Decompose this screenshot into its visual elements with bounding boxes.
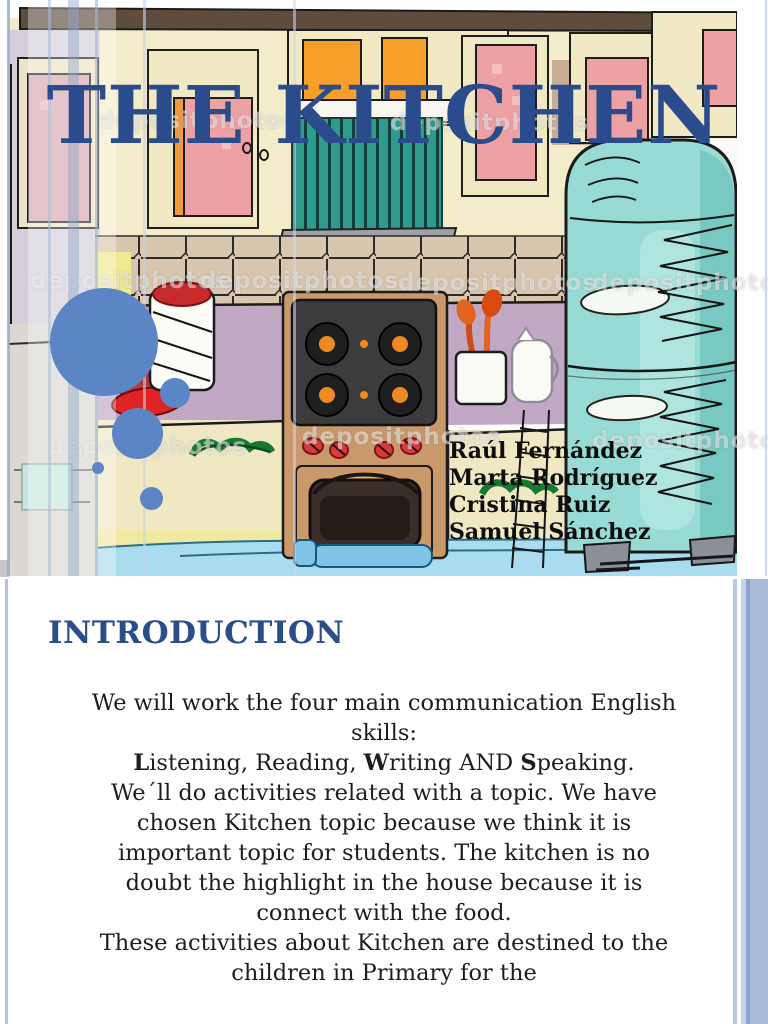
slide-body-text: We will work the four main communication… (58, 688, 710, 988)
skills-segment: peaking. (537, 750, 635, 776)
text-line: skills: (58, 718, 710, 748)
author-line: Cristina Ruiz (449, 492, 657, 519)
authors-block: Raúl Fernández Marta Rodríguez Cristina … (449, 438, 657, 546)
text-line: important topic for students. The kitche… (58, 838, 710, 868)
section-heading: INTRODUCTION (48, 615, 344, 651)
text-line: connect with the food. (58, 898, 710, 928)
paragraph: We´ll do activities related with a topic… (58, 778, 710, 928)
skills-line: Listening, Reading, Writing AND Speaking… (58, 748, 710, 778)
top-beam-icon (20, 8, 735, 31)
author-line: Marta Rodríguez (449, 465, 657, 492)
skills-segment: istening, Reading, (149, 750, 363, 776)
text-line: We will work the four main communication… (58, 688, 710, 718)
text-line: doubt the highlight in the house because… (58, 868, 710, 898)
oven-door-icon (296, 466, 432, 556)
paragraph: We will work the four main communication… (58, 688, 710, 748)
text-line: children in Primary for the (58, 958, 710, 988)
circle-decoration (92, 462, 104, 474)
circle-decoration (112, 408, 163, 459)
text-line: These activities about Kitchen are desti… (58, 928, 710, 958)
title-slide[interactable]: 06b (0, 0, 768, 576)
text-line: chosen Kitchen topic because we think it… (58, 808, 710, 838)
author-line: Samuel Sánchez (449, 519, 657, 546)
circle-decoration (50, 288, 158, 396)
circle-decoration (160, 378, 190, 408)
slide-title: THE KITCHEN (0, 68, 768, 162)
paragraph: These activities about Kitchen are desti… (58, 928, 710, 988)
author-line: Raúl Fernández (449, 438, 657, 465)
skills-segment: riting AND (389, 750, 520, 776)
stove-icon (283, 292, 447, 567)
skills-segment: W (364, 750, 389, 776)
skills-segment: S (520, 750, 536, 776)
skills-segment: L (133, 750, 149, 776)
introduction-slide[interactable]: INTRODUCTION We will work the four main … (0, 579, 768, 1024)
circle-decoration (140, 487, 163, 510)
slide-border-line (5, 579, 8, 1024)
striped-jar-icon (150, 282, 214, 390)
text-line: We´ll do activities related with a topic… (58, 778, 710, 808)
stripe-decoration (733, 579, 768, 1024)
